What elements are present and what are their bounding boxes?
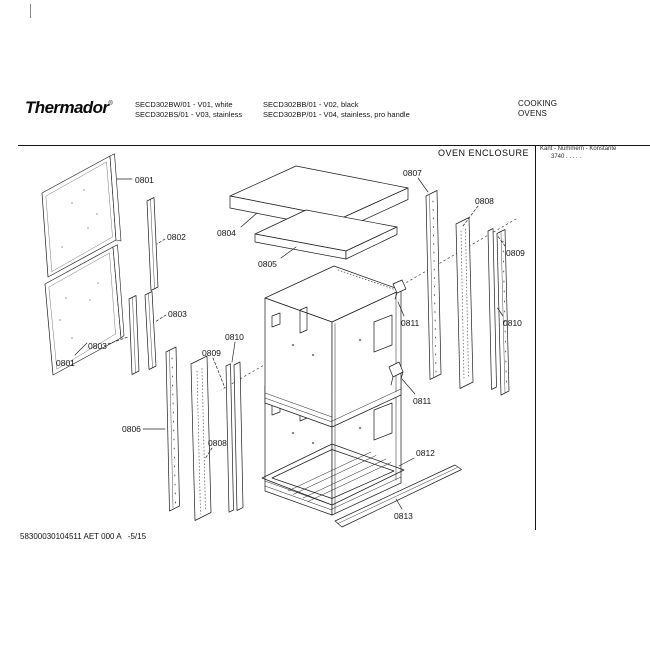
part-callout-0809: 0809 <box>202 348 221 358</box>
part-0809-rail-left <box>226 364 234 512</box>
part-0807-rail <box>426 191 441 380</box>
part-callout-0810: 0810 <box>503 318 522 328</box>
part-callout-0802: 0802 <box>167 232 186 242</box>
part-0803-trim-strips <box>129 292 156 375</box>
part-callout-0809: 0809 <box>506 248 525 258</box>
part-callout-0801: 0801 <box>135 175 154 185</box>
part-callout-0807: 0807 <box>403 168 422 178</box>
part-callout-0811: 0811 <box>401 318 420 328</box>
part-0810-rail-left <box>234 362 243 511</box>
part-callout-0805: 0805 <box>258 259 277 269</box>
part-callout-0806: 0806 <box>122 424 141 434</box>
part-callout-0803: 0803 <box>88 341 107 351</box>
part-callout-0812: 0812 <box>416 448 435 458</box>
part-callout-0801: 0801 <box>56 358 75 368</box>
part-0809-rail-right <box>488 229 497 390</box>
part-0806-rail <box>166 347 180 511</box>
parts-diagram-page: Thermador® SECD302BW/01 - V01, white SEC… <box>0 0 650 650</box>
part-callout-0808: 0808 <box>475 196 494 206</box>
exploded-view-diagram: 0801 0802 0803 0803 0801 0804 0805 0807 … <box>0 0 650 650</box>
part-callout-0808: 0808 <box>208 438 227 448</box>
part-callout-0813: 0813 <box>394 511 413 521</box>
part-callout-0810: 0810 <box>225 332 244 342</box>
document-number: 58300030104511 AET 000 A -5/15 <box>20 532 146 541</box>
upper-enclosure-box <box>265 266 401 427</box>
part-callout-0811: 0811 <box>413 396 432 406</box>
part-callout-0804: 0804 <box>217 228 236 238</box>
part-0808-rail-right <box>456 218 473 389</box>
part-callout-0803: 0803 <box>168 309 187 319</box>
part-0802-trim-strip <box>147 198 158 291</box>
